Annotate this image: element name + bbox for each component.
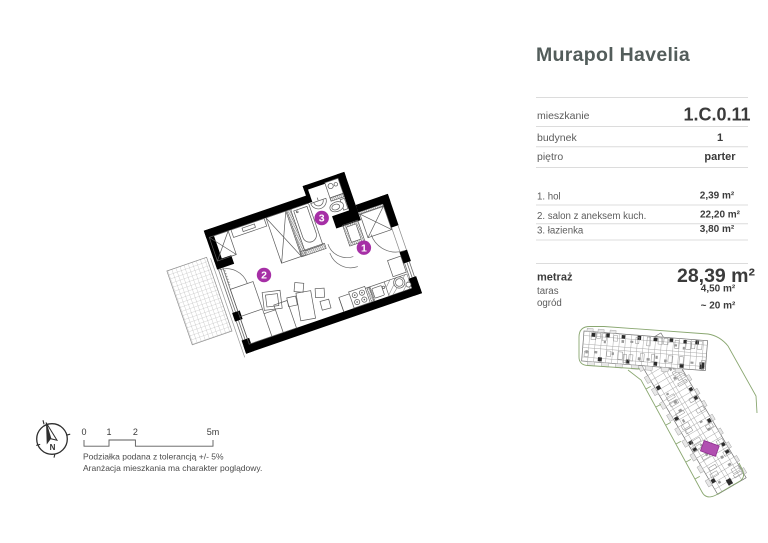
svg-text:3,80 m²: 3,80 m² bbox=[700, 224, 735, 235]
svg-text:taras: taras bbox=[537, 286, 559, 297]
svg-text:1: 1 bbox=[361, 242, 367, 254]
svg-text:Podziałka podana z tolerancją: Podziałka podana z tolerancją +/- 5% bbox=[83, 452, 224, 462]
svg-text:metraż: metraż bbox=[537, 271, 573, 283]
svg-text:1: 1 bbox=[106, 427, 111, 437]
svg-text:parter: parter bbox=[704, 151, 736, 163]
svg-text:Aranżacja mieszkania ma charak: Aranżacja mieszkania ma charakter pogląd… bbox=[83, 463, 262, 473]
svg-text:Murapol Havelia: Murapol Havelia bbox=[536, 44, 690, 66]
svg-text:ogród: ogród bbox=[537, 298, 562, 309]
svg-text:22,20 m²: 22,20 m² bbox=[700, 209, 741, 220]
svg-text:1.C.0.11: 1.C.0.11 bbox=[683, 105, 750, 125]
svg-text:2. salon z aneksem kuch.: 2. salon z aneksem kuch. bbox=[537, 211, 646, 222]
svg-text:piętro: piętro bbox=[537, 151, 563, 163]
svg-text:budynek: budynek bbox=[537, 132, 577, 144]
svg-text:1: 1 bbox=[717, 132, 723, 144]
svg-text:1. hol: 1. hol bbox=[537, 192, 561, 203]
svg-text:5m: 5m bbox=[207, 427, 220, 437]
svg-text:3. łazienka: 3. łazienka bbox=[537, 226, 584, 237]
svg-text:3: 3 bbox=[319, 213, 325, 225]
svg-text:mieszkanie: mieszkanie bbox=[537, 110, 590, 122]
svg-text:4,50 m²: 4,50 m² bbox=[701, 284, 736, 295]
svg-text:2: 2 bbox=[133, 427, 138, 437]
svg-text:N: N bbox=[50, 443, 56, 452]
svg-text:2,39 m²: 2,39 m² bbox=[700, 191, 735, 202]
svg-text:2: 2 bbox=[261, 270, 267, 282]
svg-text:~ 20 m²: ~ 20 m² bbox=[701, 300, 736, 311]
svg-text:0: 0 bbox=[81, 427, 86, 437]
